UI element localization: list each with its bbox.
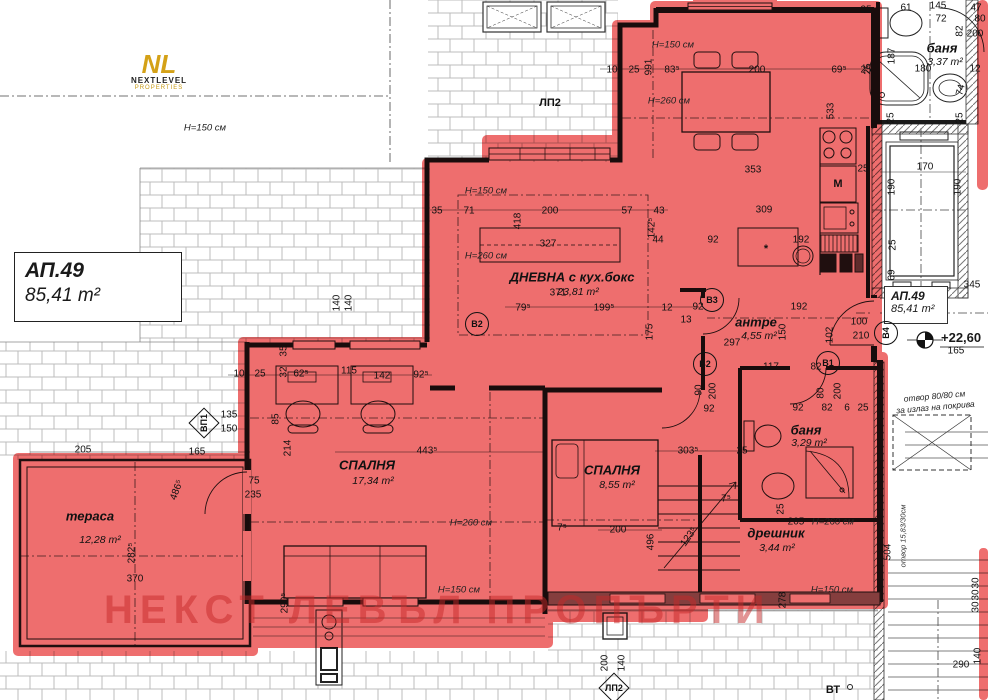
apartment-area: 85,41 m² bbox=[25, 285, 171, 307]
elevation-label: +22,60 bbox=[941, 330, 981, 345]
stair-opening-note: отвор 15,83/30см bbox=[899, 505, 908, 568]
side-apartment-id: АП.49 bbox=[891, 289, 941, 303]
logo-mark-icon: NL bbox=[100, 52, 218, 76]
logo-name: NEXTLEVEL bbox=[100, 76, 218, 85]
side-apartment-label: АП.49 85,41 m² bbox=[884, 286, 948, 324]
agency-logo: NL NEXTLEVEL PROPERTIES bbox=[100, 52, 218, 91]
apartment-title-box: АП.49 85,41 m² bbox=[14, 252, 182, 322]
watermark-text: НЕКСТ ЛЕВЪЛ ПРОПЪРТИ bbox=[104, 588, 771, 633]
side-apartment-area: 85,41 m² bbox=[891, 303, 941, 315]
apartment-id: АП.49 bbox=[25, 259, 171, 283]
logo-subtitle: PROPERTIES bbox=[100, 85, 218, 91]
floorplan-page: НЕКСТ ЛЕВЪЛ ПРОПЪРТИ NL NEXTLEVEL PROPER… bbox=[0, 0, 988, 700]
